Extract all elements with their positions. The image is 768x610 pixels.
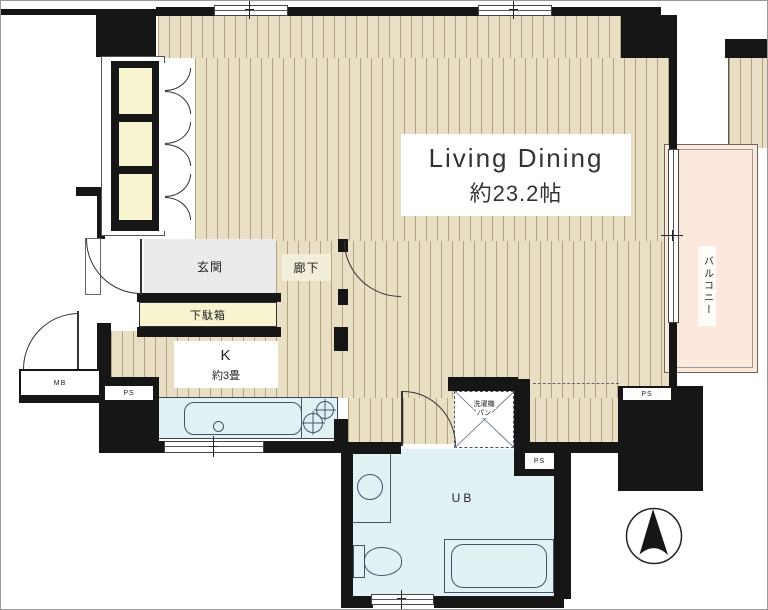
door-leaf xyxy=(140,239,142,295)
washer-pan-label: 洗濯機 パン xyxy=(454,400,514,418)
wall-segment xyxy=(137,327,281,337)
meter-box: MB xyxy=(19,369,101,403)
wall-segment xyxy=(341,442,353,608)
pipe-space-label: PS xyxy=(534,458,545,465)
meter-box-label: MB xyxy=(54,380,67,387)
wall-segment xyxy=(334,327,348,351)
window-tick xyxy=(249,1,250,19)
wall-segment xyxy=(669,58,677,151)
window-tick xyxy=(397,598,406,599)
wall-segment xyxy=(554,449,571,599)
closet-cell xyxy=(119,174,152,220)
wall-segment xyxy=(725,39,768,58)
vanity-counter-line xyxy=(390,453,391,523)
hallway-label: 廊下 xyxy=(293,259,319,276)
shoe-cabinet: 下駄箱 xyxy=(139,302,277,327)
wall-segment xyxy=(434,596,564,608)
window-tick xyxy=(209,446,218,447)
kitchen-label-box: K 約3畳 xyxy=(174,341,278,388)
wall-segment xyxy=(151,441,164,453)
kitchen-name: K xyxy=(220,347,231,364)
wall-segment xyxy=(618,386,703,491)
window-tick xyxy=(509,9,518,10)
balcony-label: バルコニー xyxy=(698,246,716,326)
kitchen-size: 約3畳 xyxy=(212,367,240,383)
pipe-space-label: PS xyxy=(641,391,652,398)
closet-cell xyxy=(119,68,152,114)
sink-drain-icon xyxy=(213,421,224,432)
pipe-space-box: PS xyxy=(623,388,671,400)
floor-hallway-band xyxy=(276,241,669,331)
wall-segment xyxy=(96,9,156,57)
window xyxy=(478,5,552,16)
kitchen-sink xyxy=(184,402,302,435)
living-dining-label-box: Living Dining 約23.2帖 xyxy=(401,134,631,216)
floor-living-dining-top xyxy=(158,15,669,58)
closet-cell xyxy=(119,122,152,166)
window-tick xyxy=(245,9,254,10)
wall-segment xyxy=(1,9,98,15)
wall-segment xyxy=(338,289,348,305)
unit-bath-label: UB xyxy=(433,488,493,508)
window-tick xyxy=(672,230,673,241)
bathtub-icon xyxy=(451,544,547,588)
door-leaf xyxy=(77,311,79,369)
pipe-space-box: PS xyxy=(525,453,554,469)
compass-icon xyxy=(623,504,685,566)
stove-burner-icon xyxy=(316,401,334,419)
wall-segment xyxy=(448,377,518,391)
window xyxy=(214,5,288,16)
shoe-cabinet-label: 下駄箱 xyxy=(190,307,226,323)
washer-pan-text-2: パン xyxy=(476,409,492,418)
ceiling-drop-line xyxy=(533,383,619,384)
unit-bath-text: UB xyxy=(452,491,475,505)
wall-segment xyxy=(334,419,348,441)
floor-neighbor-strip xyxy=(728,58,768,148)
window xyxy=(164,441,264,453)
toilet-bowl-icon xyxy=(364,547,402,576)
window xyxy=(371,594,434,605)
living-dining-size: 約23.2帖 xyxy=(470,176,563,208)
wall-segment xyxy=(621,15,677,58)
room-hallway: 廊下 xyxy=(282,254,331,281)
window-tick xyxy=(401,590,402,609)
entrance-label: 玄関 xyxy=(197,258,223,275)
living-dining-name: Living Dining xyxy=(429,143,604,174)
wall-segment xyxy=(156,7,214,16)
pipe-space-label: PS xyxy=(123,390,134,397)
door-swing-arc xyxy=(23,313,79,369)
counter-divider-line xyxy=(301,397,302,439)
pipe-space-box: PS xyxy=(105,386,153,400)
wall-segment xyxy=(137,293,281,302)
wall-segment xyxy=(348,442,401,454)
washer-pan-text-1: 洗濯機 xyxy=(473,400,496,409)
door-leaf xyxy=(401,391,403,446)
window xyxy=(668,149,679,323)
room-entrance: 玄関 xyxy=(144,239,276,293)
wall-segment xyxy=(288,7,478,16)
floor-plan-canvas: 玄関 廊下 下駄箱 K 約3畳 Living Dining 約23.2帖 UB … xyxy=(0,0,768,610)
wall-segment xyxy=(264,441,348,453)
wall-segment xyxy=(341,596,373,608)
washbasin-icon xyxy=(357,474,383,500)
vanity-counter-line xyxy=(353,522,391,523)
window-tick xyxy=(513,1,514,19)
